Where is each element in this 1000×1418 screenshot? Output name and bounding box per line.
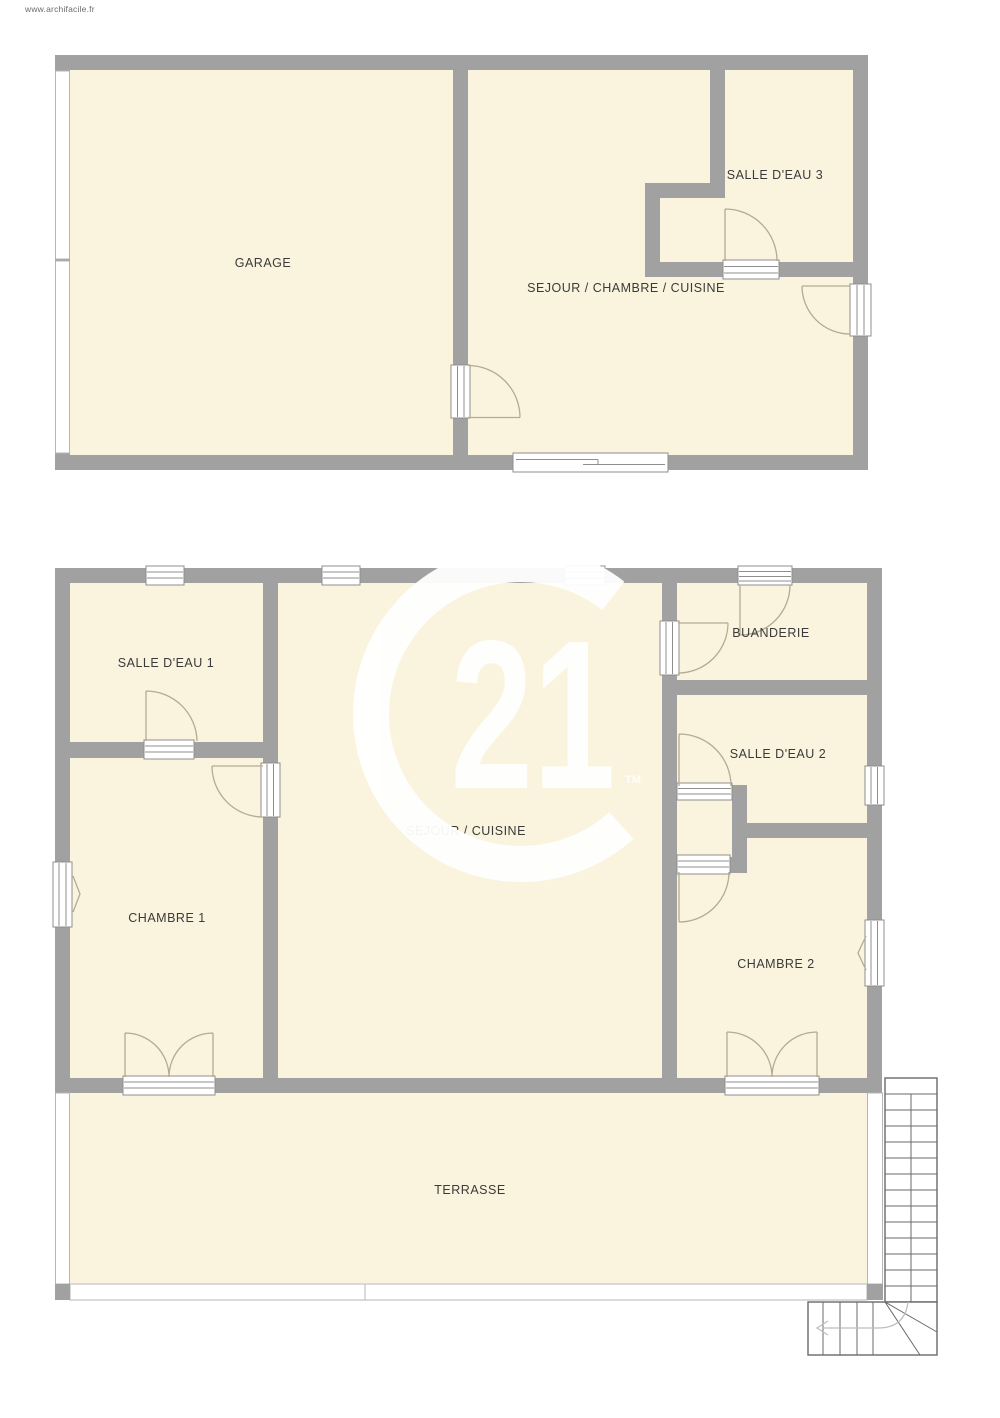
wall [867, 583, 882, 1078]
wall-laundry [662, 680, 882, 695]
room-label-chambre-2: CHAMBRE 2 [737, 957, 814, 971]
room-label-salle-deau-3: SALLE D'EAU 3 [727, 168, 823, 182]
terrace-post [867, 1284, 883, 1300]
wall-bathroom3 [645, 183, 660, 270]
door-threshold [677, 855, 730, 874]
terrace-step [70, 1284, 867, 1300]
sliding-bay-window [513, 453, 668, 472]
site-credit: www.archifacile.fr [24, 4, 95, 14]
door-threshold [660, 621, 679, 675]
door-threshold [123, 1076, 215, 1095]
room-label-salle-deau-1: SALLE D'EAU 1 [118, 656, 214, 670]
window [865, 766, 884, 805]
century21-number: 21 [450, 596, 615, 834]
door-threshold [725, 1076, 819, 1095]
door-threshold [738, 566, 792, 585]
floor-plan-page: GARAGE SEJOUR / CHAMBRE / CUISINE SALLE … [0, 0, 1000, 1418]
terrace-edge [868, 1093, 883, 1284]
window [850, 284, 871, 336]
door-threshold [451, 365, 470, 418]
wall-bathroom3 [710, 55, 725, 198]
wall [853, 70, 868, 455]
room-label-buanderie: BUANDERIE [732, 626, 809, 640]
door-threshold [723, 260, 779, 279]
garage-door-opening [56, 261, 70, 453]
terrace-edge [56, 1093, 70, 1284]
garage-door-opening [56, 71, 70, 259]
wall [55, 455, 868, 470]
room-label-terrasse: TERRASSE [434, 1183, 505, 1197]
room-label-chambre-1: CHAMBRE 1 [128, 911, 205, 925]
window [322, 566, 360, 585]
room-label-salle-deau-2: SALLE D'EAU 2 [730, 747, 826, 761]
door-threshold [144, 740, 194, 759]
room-label-garage: GARAGE [235, 256, 292, 270]
wall-bathroom2 [747, 823, 867, 838]
room-label-sejour-chambre-cuisine: SEJOUR / CHAMBRE / CUISINE [527, 281, 725, 295]
wall-bedroom1-divider [263, 583, 278, 1078]
century21-trademark: TM [625, 774, 641, 786]
window [146, 566, 184, 585]
floor-plan-drawing: GARAGE SEJOUR / CHAMBRE / CUISINE SALLE … [0, 0, 1000, 1418]
wall [55, 583, 70, 1078]
terrace-post [55, 1284, 70, 1300]
door-threshold [677, 783, 732, 800]
floor-plan-upper [55, 55, 871, 472]
door-threshold [261, 763, 280, 817]
